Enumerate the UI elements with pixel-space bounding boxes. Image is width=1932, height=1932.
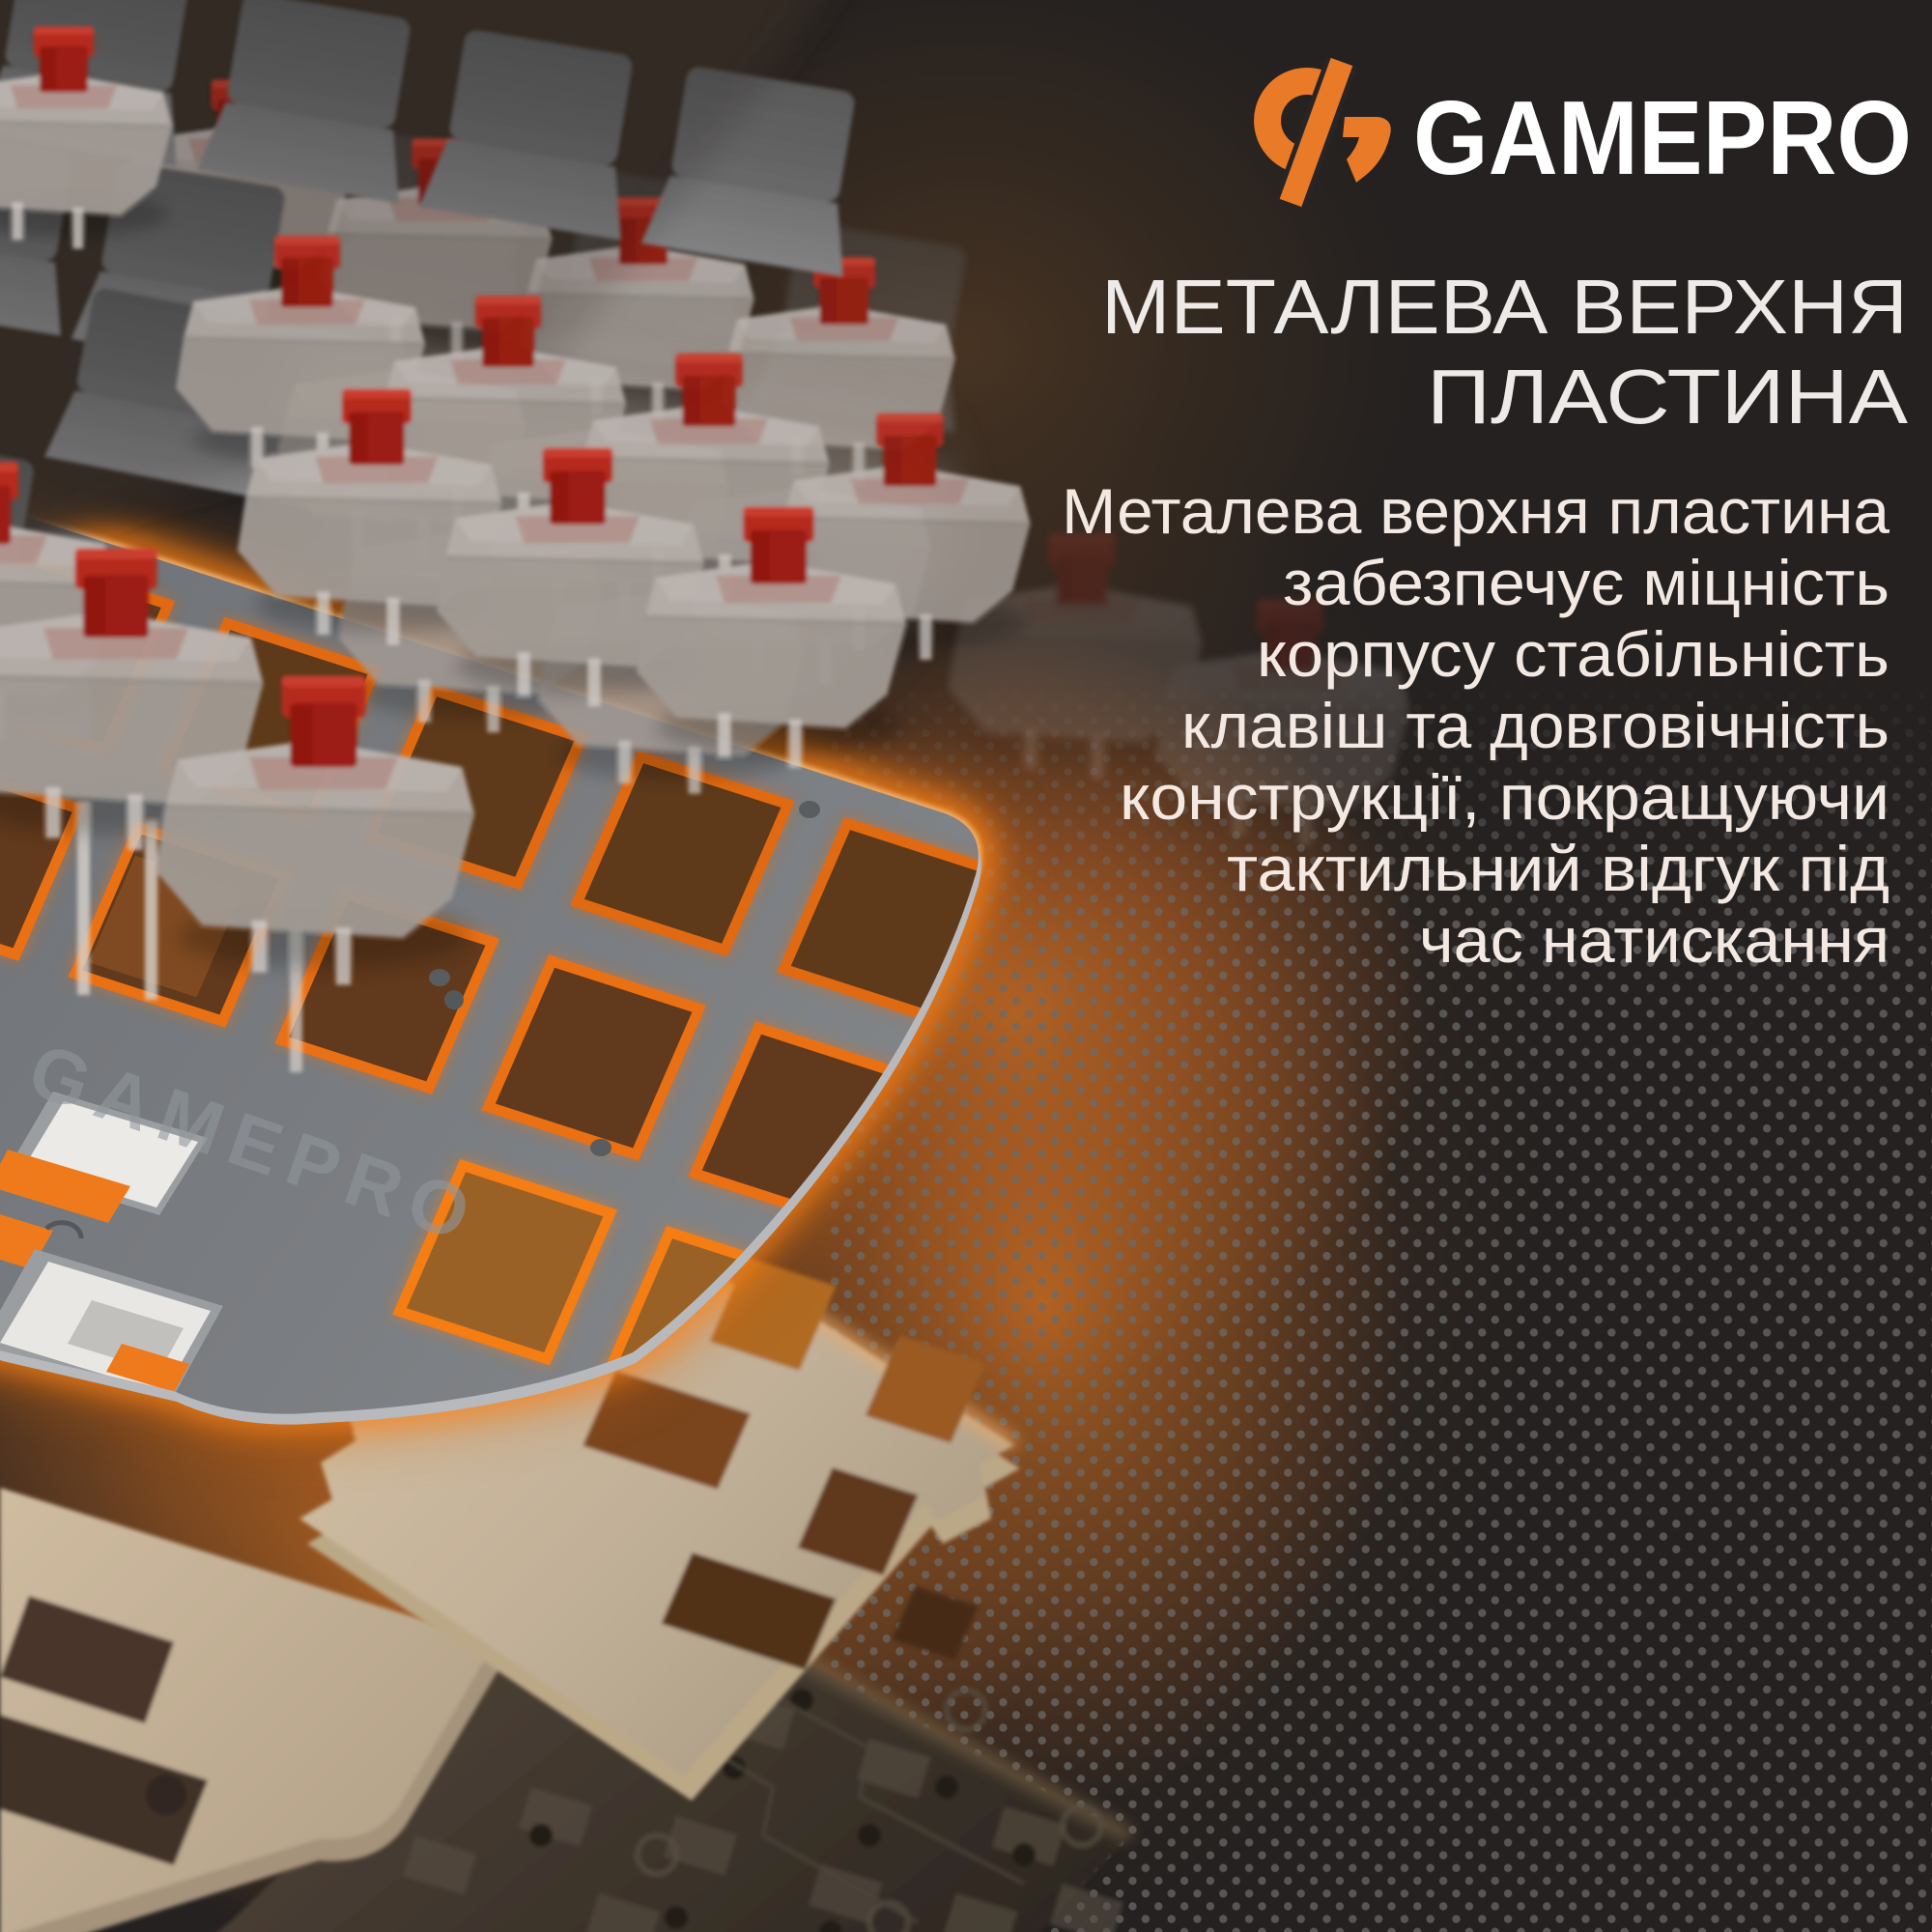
svg-text:корпусу стабільність: корпусу стабільність	[1257, 618, 1889, 690]
svg-text:забезпечує міцність: забезпечує міцність	[1283, 547, 1889, 618]
svg-text:Металева верхня пластина: Металева верхня пластина	[1062, 475, 1889, 547]
svg-text:конструкції, покращуючи: конструкції, покращуючи	[1120, 761, 1889, 833]
svg-text:час натискання: час натискання	[1419, 904, 1889, 976]
svg-text:ПЛАСТИНА: ПЛАСТИНА	[1427, 354, 1909, 440]
svg-text:тактильний відгук під: тактильний відгук під	[1227, 833, 1889, 904]
svg-text:клавіш та довговічність: клавіш та довговічність	[1181, 690, 1889, 761]
svg-text:GAMEPRO: GAMEPRO	[1413, 79, 1912, 197]
svg-text:МЕТАЛЕВА ВЕРХНЯ: МЕТАЛЕВА ВЕРХНЯ	[1101, 264, 1908, 350]
